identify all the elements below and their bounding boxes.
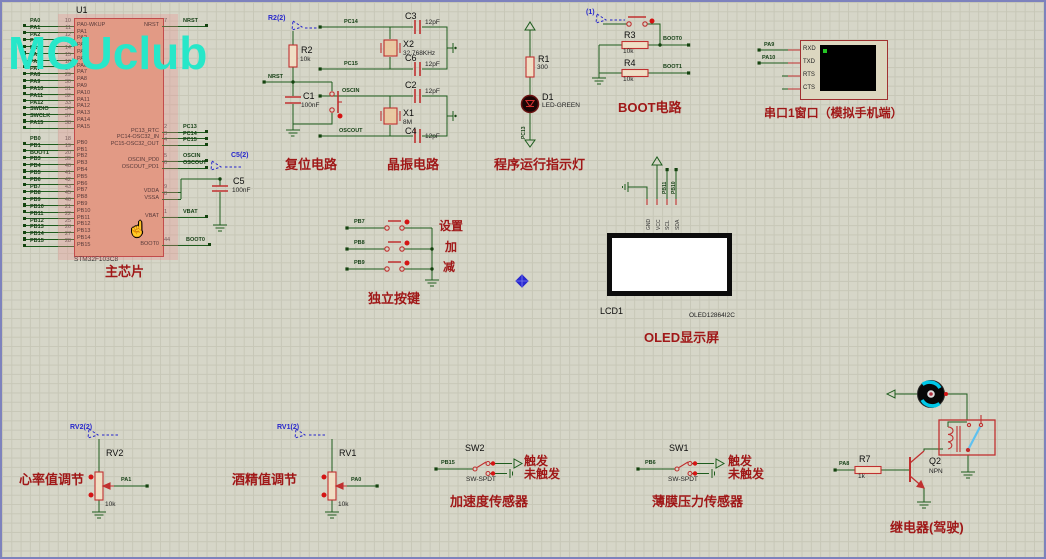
wire-pad — [23, 197, 26, 200]
chip-pin-name: PB15 — [77, 243, 90, 249]
serial-cursor — [823, 49, 827, 53]
power-arrow-icon — [716, 459, 724, 468]
chip-pin-net: PB10 — [30, 205, 44, 211]
chip-pin-number: 6 — [164, 161, 167, 167]
wire-pad — [23, 169, 26, 172]
hand-cursor-icon: ☝ — [128, 220, 147, 238]
chip-ref: U1 — [76, 6, 88, 15]
schematic-canvas: U1 STM32F103C8 主芯片 ☝ C5(2) C5 100nF R2(2… — [0, 0, 1046, 559]
key-minus-button[interactable] — [382, 260, 408, 276]
pin-wire — [24, 246, 74, 247]
ground-icon — [917, 502, 931, 508]
chip-pin-name: VBAT — [97, 214, 159, 220]
ground-icon — [712, 469, 715, 478]
chip-pin-name: PB10 — [77, 209, 90, 215]
wire-pad — [205, 130, 208, 133]
chip-pin-number: 31 — [54, 87, 71, 93]
wire-pad — [23, 38, 26, 41]
wire-pad — [23, 237, 26, 240]
c2-ref: C2 — [405, 81, 417, 90]
r3-ref: R3 — [624, 31, 636, 40]
ground-icon — [92, 512, 106, 518]
oled-display[interactable] — [607, 233, 732, 296]
chip-pin-number: 18 — [54, 137, 71, 143]
chip-pin-net: PB11 — [30, 212, 43, 218]
ground-icon — [213, 225, 227, 231]
nrst-net-label: NRST — [268, 75, 283, 81]
lcd1-ref: LCD1 — [600, 307, 623, 316]
wire-pad — [23, 45, 26, 48]
power-arrow-icon — [887, 390, 895, 398]
pin-wire — [162, 217, 206, 218]
x1-ref: X1 — [403, 109, 414, 118]
chip-pin-number: 10 — [54, 19, 71, 25]
chip-pin-net: PB6 — [30, 178, 41, 184]
chip-pin-number: 2 — [164, 125, 167, 131]
chip-pin-net: VBAT — [183, 210, 198, 216]
key-net-label: PB8 — [354, 241, 365, 247]
q2-type: NPN — [929, 469, 943, 476]
rv1-probe-label: RV1(2) — [277, 424, 299, 431]
chip-pin-name: VSSA — [97, 196, 159, 202]
wire-pad — [23, 176, 26, 179]
x1-value: 8M — [403, 120, 412, 127]
sw2-model: SW-SPDT — [466, 477, 496, 484]
rv2-probe-label: RV2(2) — [70, 424, 92, 431]
serial-pin-label: RXD — [803, 46, 816, 52]
chip-pin-net: OSCOUT — [183, 161, 207, 167]
c3-ref: C3 — [405, 12, 417, 21]
power-arrow-icon — [525, 22, 535, 30]
chip-pin-number: 21 — [54, 205, 71, 211]
rv1-value: 10k — [338, 502, 348, 509]
ground-icon — [325, 512, 339, 518]
chip-pin-net: PA0 — [30, 19, 40, 25]
wire-pad — [23, 217, 26, 220]
chip-pin-net: PA1 — [30, 26, 40, 32]
pin-wire — [162, 168, 206, 169]
key-net-label: PB7 — [354, 220, 365, 226]
key-plus-button[interactable] — [382, 240, 408, 256]
chip-pin-name: PB14 — [77, 236, 90, 242]
chip-pin-number: 11 — [54, 26, 71, 32]
c6-value: 12pF — [425, 62, 440, 69]
chip-pin-net: NRST — [183, 19, 198, 25]
pc13-net-label: PC13 — [522, 126, 527, 139]
chip-pin-name: NRST — [97, 23, 159, 29]
boot1-net-label: BOOT1 — [663, 65, 682, 71]
sw1-off-label: 未触发 — [728, 468, 764, 481]
chip-pin-number: 4 — [164, 138, 167, 144]
wire-pad — [23, 65, 26, 68]
rv1-ref: RV1 — [339, 449, 356, 458]
chip-pin-number: 38 — [54, 121, 71, 127]
key-net-label: PB9 — [354, 261, 365, 267]
sw1-ref: SW1 — [669, 444, 689, 453]
sw2-switch[interactable] — [470, 458, 494, 478]
chip-pin-name: PA4 — [77, 50, 87, 56]
chip-pin-name: PA5 — [77, 57, 87, 63]
c5-probe-label: C5(2) — [231, 152, 249, 159]
sw2-on-label: 触发 — [524, 455, 548, 468]
key-action-label: 加 — [445, 241, 457, 254]
wire-pad — [23, 156, 26, 159]
q2-ref: Q2 — [929, 457, 941, 466]
pin-wire — [162, 199, 181, 200]
wire-pad — [23, 244, 26, 247]
chip-pin-net: PA15 — [30, 121, 43, 127]
ground-icon — [286, 130, 300, 136]
pa1-net-label: PA1 — [121, 478, 131, 484]
chip-pin-net: PA5 — [30, 53, 40, 59]
oled-value: OLED12864I2C — [689, 313, 735, 320]
chip-pin-net: PC13 — [183, 125, 197, 131]
sw1-model: SW-SPDT — [668, 477, 698, 484]
wire-pad — [23, 231, 26, 234]
chip-pin-number: 42 — [54, 178, 71, 184]
probe-markers — [88, 14, 625, 438]
chip-pin-number: 9 — [164, 185, 167, 191]
wire-pad — [23, 92, 26, 95]
x2-value: 32.768KHz — [403, 51, 435, 58]
chip-pin-name: PA14 — [77, 118, 90, 124]
motor-component[interactable] — [917, 380, 945, 408]
serial-pin-label: RTS — [803, 72, 815, 78]
chip-pin-number: 7 — [164, 19, 167, 25]
power-arrow-icon — [652, 157, 662, 165]
power-arrow-icon — [514, 459, 522, 468]
serial-caption: 串口1窗口（模拟手机端） — [764, 107, 903, 120]
sw2-off-label: 未触发 — [524, 468, 560, 481]
chip-pin-name: PA9 — [77, 84, 87, 90]
pb6-net-label: PB6 — [645, 461, 656, 467]
junctions — [146, 25, 837, 487]
r1-value: 300 — [537, 65, 548, 72]
chip-pin-number: 5 — [164, 154, 167, 160]
chip-pin-name: PB9 — [77, 202, 87, 208]
pa0-net-label: PA0 — [351, 478, 361, 484]
d1-value: LED-GREEN — [542, 103, 580, 110]
oled-caption: OLED显示屏 — [644, 331, 719, 345]
chip-pin-net: PA11 — [30, 94, 43, 100]
wire-pad — [23, 183, 26, 186]
r2-value: 10k — [300, 57, 310, 64]
wire-pad — [205, 137, 208, 140]
chip-pin-name: BOOT0 — [97, 242, 159, 248]
reset-caption: 复位电路 — [285, 158, 337, 172]
pc14-net-label: PC14 — [344, 20, 358, 26]
keys-caption: 独立按键 — [368, 292, 420, 306]
wire-pad — [23, 203, 26, 206]
r2-ref: R2 — [301, 46, 313, 55]
chip-value: STM32F103C8 — [74, 257, 118, 264]
sw2-caption: 加速度传感器 — [450, 495, 528, 509]
chip-caption: 主芯片 — [105, 265, 144, 279]
pin-wire — [162, 245, 209, 246]
pa8-net-label: PA8 — [839, 462, 849, 468]
boot-caption: BOOT电路 — [618, 101, 682, 115]
ground-icon — [425, 280, 439, 286]
c3-value: 12pF — [425, 20, 440, 27]
sw2-ref: SW2 — [465, 444, 485, 453]
chip-pin-number: 8 — [164, 192, 167, 198]
key-action-label: 设置 — [439, 220, 463, 233]
wire-pad — [23, 72, 26, 75]
wire-pad — [23, 119, 26, 122]
chip-pin-number: 32 — [54, 94, 71, 100]
oled-pin-label: GND — [647, 219, 652, 230]
sw1-on-label: 触发 — [728, 455, 752, 468]
chip-pin-name: PA15 — [77, 125, 90, 131]
rv1-caption: 酒精值调节 — [232, 473, 297, 487]
sw1-caption: 薄膜压力传感器 — [652, 495, 743, 509]
wire-pad — [23, 79, 26, 82]
oled-net-label: PB10 — [672, 181, 677, 194]
oscout-net-label: OSCOUT — [339, 129, 363, 135]
wire-pad — [23, 99, 26, 102]
c2-value: 12pF — [425, 89, 440, 96]
chip-pin-number: 15 — [54, 53, 71, 59]
wire-pad — [23, 142, 26, 145]
chip-pin-number: 44 — [164, 238, 170, 244]
pin-wire — [162, 145, 206, 146]
terminal-arrow-icon — [525, 140, 535, 147]
chip-pin-net: PB5 — [30, 171, 41, 177]
pa9-net-label: PA9 — [764, 43, 774, 49]
wire-pad — [23, 126, 26, 129]
c4-value: 12pF — [425, 134, 440, 141]
chip-pin-net: PB15 — [30, 239, 44, 245]
chip-pin-number: 28 — [54, 239, 71, 245]
boot-button[interactable] — [624, 14, 650, 30]
chip-pin-net: OSCIN — [183, 154, 200, 160]
chip-pin-name: VDDA — [97, 189, 159, 195]
chip-pin-number: 16 — [54, 60, 71, 66]
wire-pad — [23, 24, 26, 27]
key-set-button[interactable] — [382, 219, 408, 235]
pin-wire — [162, 26, 206, 27]
chip-pin-net: PB0 — [30, 137, 41, 143]
chip-pin-net: PC15 — [183, 138, 197, 144]
x2-ref: X2 — [403, 40, 414, 49]
key-action-label: 减 — [443, 261, 455, 274]
oled-pin-label: SDA — [676, 220, 681, 230]
serial-pin-label: TXD — [803, 59, 815, 65]
chip-pin-net: PA10 — [30, 87, 43, 93]
c5-ref: C5 — [233, 177, 245, 186]
oled-pin-label: VCC — [657, 219, 662, 230]
chip-pin-number: 41 — [54, 171, 71, 177]
ground-icon — [623, 182, 629, 192]
reset-probe-label: R2(2) — [268, 15, 286, 22]
wire-pad — [208, 243, 211, 246]
relay-caption: 继电器(驾驶) — [890, 521, 964, 535]
c1-value: 100nF — [301, 103, 319, 110]
chip-pin-net: BOOT0 — [186, 238, 205, 244]
pa10-net-label: PA10 — [762, 56, 775, 62]
serial-terminal-screen[interactable] — [820, 45, 876, 91]
chip-pin-name: PB0 — [77, 141, 87, 147]
ground-icon — [592, 78, 606, 84]
wire-pad — [23, 190, 26, 193]
boot0-net-label: BOOT0 — [663, 37, 682, 43]
chip-pin-name: OSCIN_PD0 — [97, 158, 159, 164]
pb15-net-label: PB15 — [441, 461, 455, 467]
wire-pad — [23, 113, 26, 116]
wire-pad — [23, 210, 26, 213]
relay-component[interactable] — [939, 420, 995, 455]
oled-net-label: PB11 — [663, 182, 668, 194]
rv2-potentiometer[interactable] — [90, 470, 116, 502]
ground-icon — [961, 472, 975, 478]
r7-value: 1k — [858, 474, 865, 481]
chip-pin-name: OSCOUT_PD1 — [97, 165, 159, 171]
rv2-ref: RV2 — [106, 449, 123, 458]
sw1-switch[interactable] — [672, 458, 696, 478]
r7-ref: R7 — [859, 455, 871, 464]
chip-pin-number: 19 — [54, 144, 71, 150]
chip-pin-name: PB4 — [77, 168, 87, 174]
wire-pad — [23, 51, 26, 54]
chip-pin-net: PA6 — [30, 60, 40, 66]
rv2-caption: 心率值调节 — [19, 473, 84, 487]
c1-ref: C1 — [303, 92, 315, 101]
wire-pad — [23, 224, 26, 227]
rv1-potentiometer[interactable] — [323, 470, 349, 502]
pc15-net-label: PC15 — [344, 62, 358, 68]
wire-pad — [23, 31, 26, 34]
r4-ref: R4 — [624, 59, 636, 68]
r3-value: 10k — [623, 49, 633, 56]
pin-wire — [24, 128, 74, 129]
chip-pin-name: PA10 — [77, 91, 90, 97]
c4-ref: C4 — [405, 127, 417, 136]
wire-pad — [205, 143, 208, 146]
wire-pad — [205, 24, 208, 27]
wire-pad — [23, 58, 26, 61]
oled-pin-label: SCL — [666, 220, 671, 230]
wire-pad — [205, 215, 208, 218]
wire-pad — [23, 85, 26, 88]
serial-pin-label: CTS — [803, 85, 815, 91]
wire-pad — [23, 106, 26, 109]
chip-pin-number: 22 — [54, 212, 71, 218]
led-d1[interactable] — [520, 94, 540, 114]
wire-pad — [23, 149, 26, 152]
reset-button[interactable] — [324, 86, 346, 118]
chip-pin-name: PC15-OSC32_OUT — [97, 142, 159, 148]
chip-pin-name: PB5 — [77, 175, 87, 181]
c5-value: 100nF — [232, 188, 250, 195]
wire-pad — [23, 163, 26, 166]
ground-icon — [510, 469, 513, 478]
rv2-value: 10k — [105, 502, 115, 509]
chip-pin-net: PB1 — [30, 144, 41, 150]
r4-value: 10k — [623, 77, 633, 84]
chip-pin-number: 1 — [164, 210, 167, 216]
crystal-caption: 晶振电路 — [387, 158, 439, 172]
indicator-caption: 程序运行指示灯 — [494, 158, 585, 172]
boot-probe-label: (1) — [586, 9, 595, 16]
